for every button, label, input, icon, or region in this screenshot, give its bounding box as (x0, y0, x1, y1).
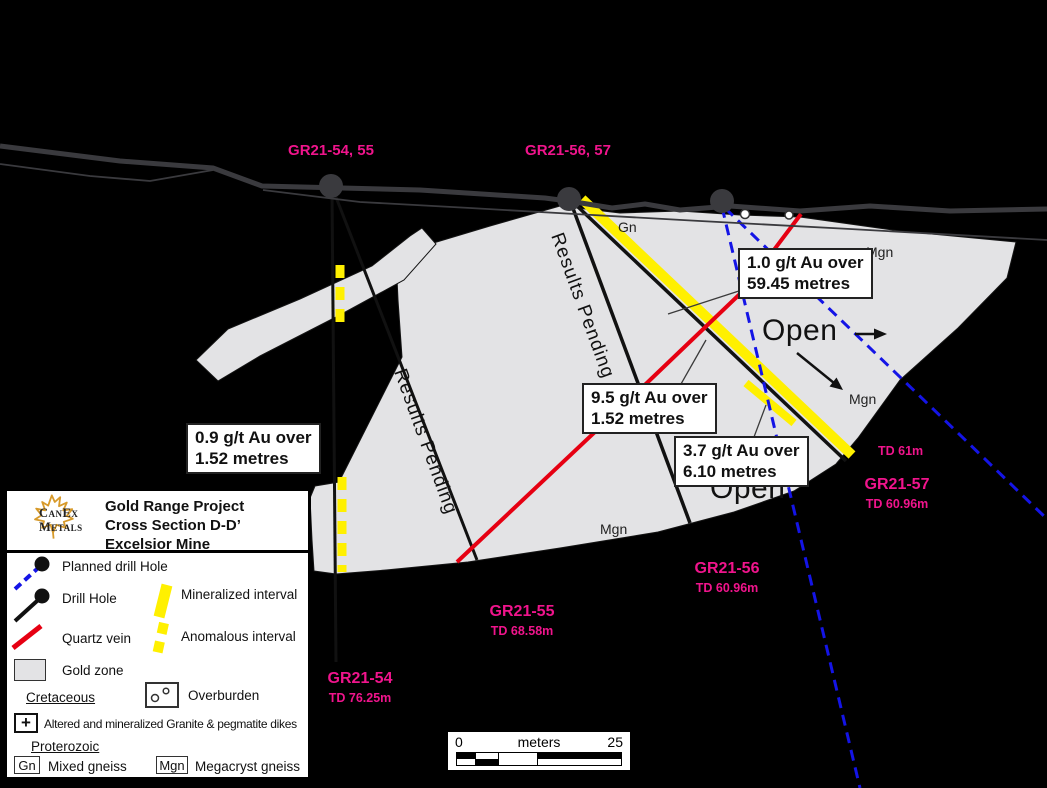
overburden-base-line-mid (263, 190, 575, 214)
legend-header: CanEx Metals Gold Range Project Cross Se… (7, 491, 308, 553)
open-label-1: Open (762, 314, 837, 348)
scale-bar: 0 meters 25 (446, 730, 632, 772)
legend-title-line1: Gold Range Project (105, 497, 244, 516)
hole-label-gr21-55: GR21-55 (490, 603, 555, 621)
scale-start-label: 0 (455, 734, 463, 750)
legend-mixed-gneiss-label: Mixed gneiss (48, 759, 127, 774)
annotation-3-line1: 3.7 g/t Au over (683, 441, 800, 462)
gn-abbr-box: Gn (14, 756, 40, 774)
logo-brand-line2: Metals (39, 521, 83, 535)
annotation-box-3: 3.7 g/t Au over 6.10 metres (674, 436, 809, 487)
legend-box: CanEx Metals Gold Range Project Cross Se… (4, 488, 311, 780)
annotation-2-line2: 1.52 metres (591, 409, 708, 430)
scale-bar-labels: 0 meters 25 (455, 734, 623, 750)
annotation-3-line2: 6.10 metres (683, 462, 800, 483)
legend-title: Gold Range Project Cross Section D-D’ Ex… (105, 497, 244, 555)
legend-mineralized-label: Mineralized interval (181, 587, 297, 602)
collar-gr21-54-55 (319, 174, 343, 198)
granite-dikes-icon: + (14, 713, 38, 733)
legend-title-line3: Excelsior Mine (105, 535, 244, 554)
gold-zone-icon (14, 659, 46, 681)
scale-bar-strip (456, 752, 622, 766)
hole-label-gr21-56: GR21-56 (695, 560, 760, 578)
legend-title-line2: Cross Section D-D’ (105, 516, 244, 535)
drill-hole-line-gr21-54 (332, 192, 336, 662)
scale-end-label: 25 (607, 734, 623, 750)
logo-brand-line1: CanEx (39, 507, 83, 521)
legend-granite-label: Altered and mineralized Granite & pegmat… (44, 717, 297, 731)
cross-section-figure: GR21-54, 55 GR21-56, 57 Gn Mgn Mgn Mgn R… (0, 0, 1047, 788)
rock-label-gn: Gn (618, 219, 637, 235)
hole-td-gr21-57: TD 60.96m (866, 497, 929, 511)
collar-gr21-56-57 (557, 187, 581, 211)
surface-line (0, 146, 1047, 211)
hole-td-gr21-55: TD 68.58m (491, 624, 554, 638)
annotation-box-2: 9.5 g/t Au over 1.52 metres (582, 383, 717, 434)
collar-planned (710, 189, 734, 213)
anomalous-interval-icon (148, 621, 174, 657)
annotation-box-4: 0.9 g/t Au over 1.52 metres (186, 423, 321, 474)
legend-quartz-vein-label: Quartz vein (62, 631, 131, 646)
legend-planned-drill-hole-label: Planned drill Hole (62, 559, 168, 574)
annotation-4-line1: 0.9 g/t Au over (195, 428, 312, 449)
hole-td-gr21-56: TD 60.96m (696, 581, 759, 595)
td-tip-label: TD 61m (878, 444, 923, 458)
legend-anomalous-label: Anomalous interval (181, 629, 296, 644)
overburden-pebble-1 (741, 210, 750, 219)
annotation-1-line1: 1.0 g/t Au over (747, 253, 864, 274)
overburden-icon (145, 682, 179, 708)
hole-label-gr21-57: GR21-57 (865, 476, 930, 494)
legend-megacryst-gneiss-label: Megacryst gneiss (195, 759, 300, 774)
legend-cretaceous-label: Cretaceous (26, 690, 95, 705)
canex-logo: CanEx Metals (15, 493, 103, 547)
legend-overburden-label: Overburden (188, 688, 259, 703)
annotation-4-line2: 1.52 metres (195, 449, 312, 470)
rock-label-mgn-2: Mgn (849, 391, 876, 407)
hole-label-gr21-54: GR21-54 (328, 670, 393, 688)
collar-label-gr21-56-57: GR21-56, 57 (525, 142, 611, 159)
mgn-abbr-box: Mgn (156, 756, 188, 774)
overburden-pebble-2 (785, 211, 793, 219)
legend-proterozoic-label: Proterozoic (31, 739, 99, 754)
legend-gold-zone-label: Gold zone (62, 663, 124, 678)
mineralized-interval-icon (150, 581, 176, 621)
annotation-box-1: 1.0 g/t Au over 59.45 metres (738, 248, 873, 299)
quartz-vein-icon (11, 623, 45, 651)
logo-wordmark: CanEx Metals (39, 507, 83, 535)
drill-hole-icon (13, 585, 57, 625)
hole-td-gr21-54: TD 76.25m (329, 691, 392, 705)
rock-label-mgn-3: Mgn (600, 521, 627, 537)
annotation-2-line1: 9.5 g/t Au over (591, 388, 708, 409)
legend-drill-hole-label: Drill Hole (62, 591, 117, 606)
collar-label-gr21-54-55: GR21-54, 55 (288, 142, 374, 159)
annotation-1-line2: 59.45 metres (747, 274, 864, 295)
scale-unit-label: meters (518, 734, 561, 750)
